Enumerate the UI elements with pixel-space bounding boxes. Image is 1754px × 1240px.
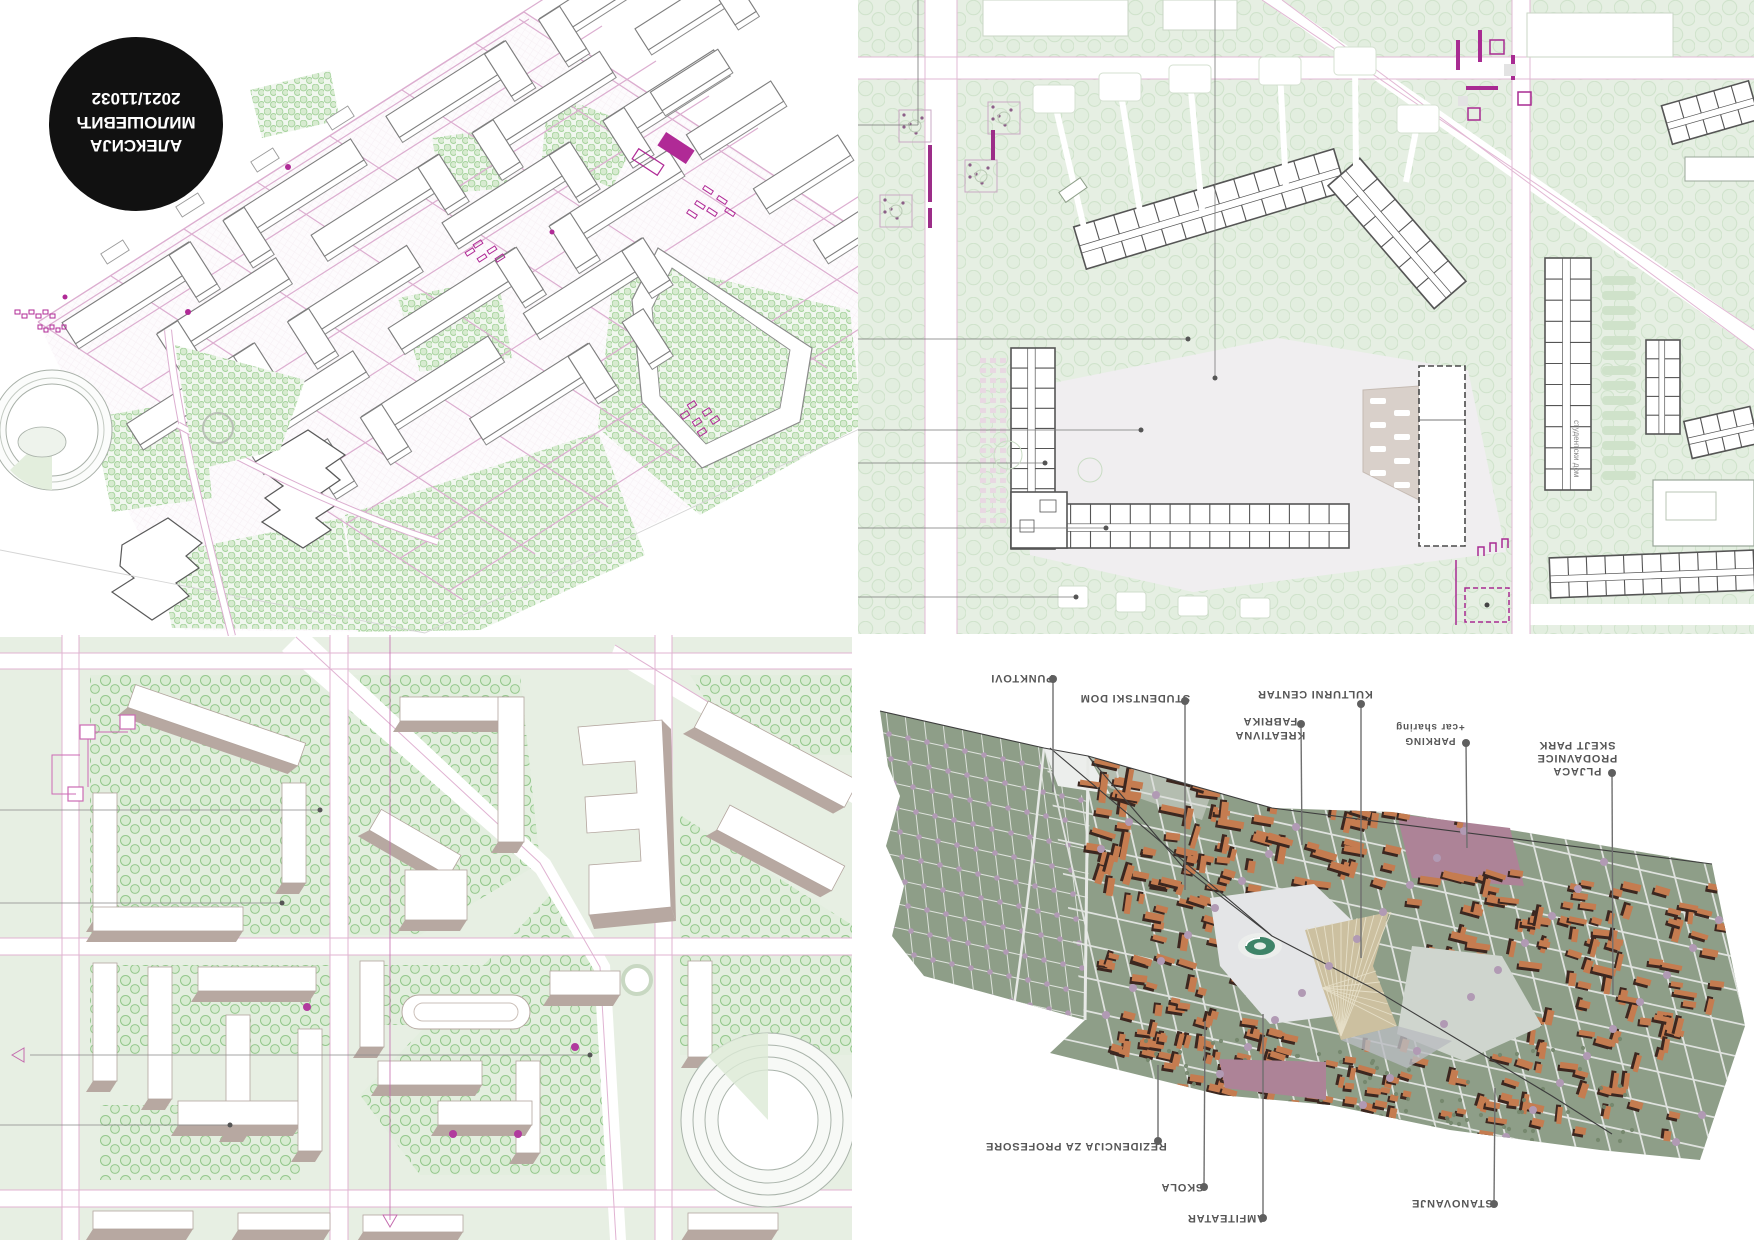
svg-text:PRODAVNICE: PRODAVNICE — [1537, 752, 1618, 764]
svg-text:STUDENTSKI DOM: STUDENTSKI DOM — [1080, 692, 1190, 704]
svg-text:МИЛОШЕВИЋ: МИЛОШЕВИЋ — [76, 113, 195, 132]
svg-text:PARKING: PARKING — [1405, 735, 1456, 746]
svg-text:студентски дом: студентски дом — [1572, 420, 1581, 477]
svg-text:PUNKTOVI: PUNKTOVI — [990, 672, 1053, 684]
svg-text:+car sharing: +car sharing — [1395, 721, 1464, 732]
svg-text:SKOLA: SKOLA — [1161, 1181, 1204, 1193]
svg-text:REZIDENCIJA ZA PROFESORE: REZIDENCIJA ZA PROFESORE — [985, 1140, 1167, 1152]
svg-text:KREATIVNA: KREATIVNA — [1235, 729, 1306, 741]
svg-text:SKEJT PARK: SKEJT PARK — [1539, 739, 1616, 751]
svg-text:2021/11032: 2021/11032 — [92, 89, 181, 108]
svg-text:KULTURNI CENTAR: KULTURNI CENTAR — [1257, 688, 1372, 700]
svg-text:PLJACA: PLJACA — [1553, 765, 1602, 777]
svg-text:STANOVANJE: STANOVANJE — [1411, 1197, 1493, 1209]
svg-text:FABRIKA: FABRIKA — [1243, 715, 1298, 727]
svg-text:АЛЕКСИЈА: АЛЕКСИЈА — [90, 136, 182, 155]
svg-text:AMFITEATAR: AMFITEATAR — [1187, 1212, 1265, 1224]
